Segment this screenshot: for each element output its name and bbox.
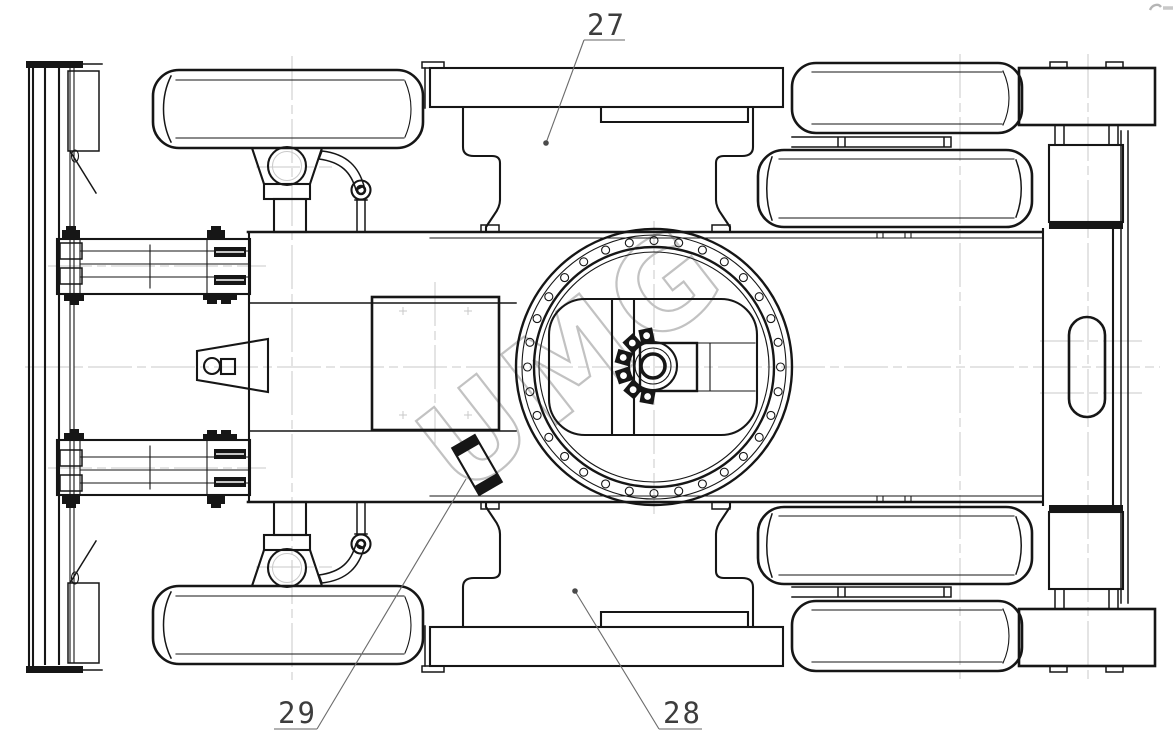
rear-inner-tire xyxy=(758,150,1032,227)
outrigger-box xyxy=(1049,145,1123,222)
callout-28-dot xyxy=(572,588,578,594)
rear-inner-tread xyxy=(779,159,1014,218)
pad-links xyxy=(1055,125,1118,145)
outrigger-pad xyxy=(1019,68,1155,125)
callout-27-label: 27 xyxy=(587,8,626,42)
fender-walkway xyxy=(422,62,783,232)
blade-top-fitting xyxy=(26,61,102,193)
blade-push-bracket xyxy=(68,71,99,151)
kingpin-boss xyxy=(268,147,306,185)
deck-recess-step xyxy=(601,107,748,122)
hitch-pin-hole xyxy=(204,358,220,374)
dozer-blade xyxy=(29,62,74,668)
front-tire-left-sidewall xyxy=(164,76,172,142)
fender-bracket-right-profile xyxy=(716,107,753,231)
callout-27-leader xyxy=(546,40,584,143)
front-tire xyxy=(153,70,423,148)
fender-bracket-left-profile xyxy=(463,107,500,231)
technical-drawing-sheet: UMG xyxy=(0,0,1174,749)
knuckle-base xyxy=(264,184,310,199)
rear-outer-tire xyxy=(792,63,1022,133)
rear-outer-sidewall xyxy=(1003,71,1009,125)
antislip-deck-band xyxy=(430,68,783,107)
clevis-lower xyxy=(60,268,82,284)
outrigger xyxy=(1019,62,1155,229)
axle-column xyxy=(274,199,306,232)
tie-rod-link xyxy=(355,200,367,232)
front-tire-tread-lines xyxy=(176,80,404,138)
tie-rod-joint xyxy=(352,181,371,200)
rear-inner-sidewalls xyxy=(767,157,1022,220)
steering-arm xyxy=(319,151,364,190)
callout-29-label: 29 xyxy=(278,696,317,730)
callout-29: 29 xyxy=(274,479,466,730)
tow-hitch xyxy=(197,339,268,392)
chassis-top-view-drawing: UMG xyxy=(0,0,1174,749)
hitch-body xyxy=(197,339,268,392)
tie-rod-pin xyxy=(357,186,365,194)
callout-27: 27 xyxy=(543,8,626,146)
watermark-fragment-icon xyxy=(1150,5,1161,10)
front-wheel xyxy=(153,70,423,232)
rear-axle-housing xyxy=(792,137,951,147)
rear-outer-tread xyxy=(812,72,1002,124)
callout-28: 28 xyxy=(572,588,702,730)
steering-knuckle xyxy=(252,148,322,184)
kingpin-bore xyxy=(273,152,302,181)
outrigger-cross-bar xyxy=(1049,222,1123,229)
callout-28-label: 28 xyxy=(663,696,702,730)
front-tire-right-sidewall xyxy=(405,81,411,137)
rear-dual-wheels xyxy=(758,63,1032,227)
callout-27-dot xyxy=(543,140,549,146)
callout-29-leader xyxy=(317,479,466,729)
clevis-upper xyxy=(60,243,82,259)
lower-half-geometry-mirror xyxy=(26,429,1155,673)
